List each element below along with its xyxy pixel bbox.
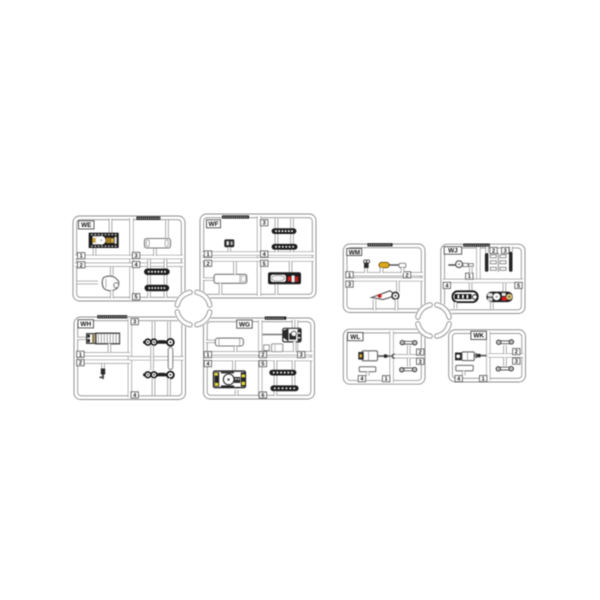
svg-text:6: 6 <box>261 393 264 399</box>
svg-text:2: 2 <box>419 350 422 356</box>
svg-text:1: 1 <box>79 352 82 358</box>
svg-text:3: 3 <box>348 282 351 288</box>
svg-text:3: 3 <box>135 253 138 259</box>
svg-text:3: 3 <box>133 320 136 326</box>
svg-text:3: 3 <box>263 221 266 227</box>
svg-text:2: 2 <box>80 263 83 269</box>
svg-text:2: 2 <box>261 353 264 359</box>
svg-text:WH: WH <box>80 321 91 328</box>
svg-text:2: 2 <box>79 361 82 367</box>
svg-text:3: 3 <box>504 249 507 255</box>
svg-text:5: 5 <box>135 295 138 301</box>
svg-text:5: 5 <box>263 261 266 267</box>
svg-text:WF: WF <box>209 221 219 228</box>
svg-text:WJ: WJ <box>448 247 458 254</box>
svg-text:WM: WM <box>349 250 360 257</box>
svg-text:3: 3 <box>515 359 518 365</box>
svg-text:1: 1 <box>482 377 485 383</box>
svg-text:2: 2 <box>515 350 518 356</box>
svg-text:5: 5 <box>261 362 264 368</box>
svg-text:WK: WK <box>473 333 484 340</box>
svg-text:5: 5 <box>517 283 520 289</box>
svg-text:1: 1 <box>348 273 351 279</box>
svg-text:2: 2 <box>405 273 408 279</box>
svg-text:1: 1 <box>468 274 471 280</box>
svg-text:1: 1 <box>206 252 209 258</box>
svg-text:WL: WL <box>350 334 360 341</box>
svg-text:1: 1 <box>206 353 209 359</box>
svg-text:3: 3 <box>300 353 303 359</box>
svg-text:3: 3 <box>419 359 422 365</box>
svg-text:1: 1 <box>385 377 388 383</box>
svg-text:1: 1 <box>80 254 83 260</box>
svg-text:2: 2 <box>492 249 495 255</box>
svg-text:WE: WE <box>81 222 92 229</box>
svg-text:2: 2 <box>206 261 209 267</box>
svg-text:WG: WG <box>239 321 250 328</box>
